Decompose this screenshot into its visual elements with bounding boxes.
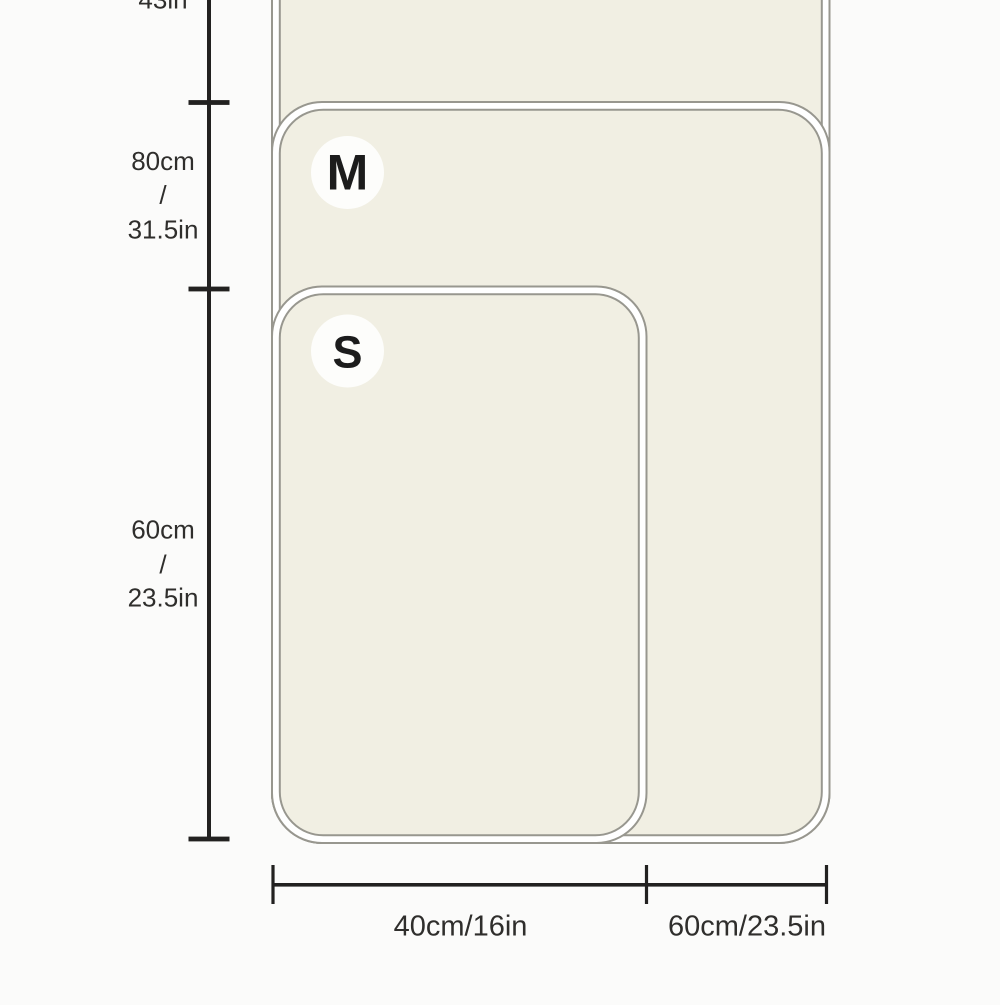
svg-text:40cm/16in: 40cm/16in (394, 911, 528, 943)
svg-text:/: / (159, 180, 167, 210)
svg-text:60cm: 60cm (131, 515, 195, 545)
svg-text:80cm: 80cm (131, 146, 195, 176)
svg-text:23.5in: 23.5in (128, 583, 199, 613)
svg-text:43in: 43in (138, 0, 187, 15)
svg-text:S: S (332, 327, 362, 378)
svg-text:60cm/23.5in: 60cm/23.5in (668, 911, 826, 943)
svg-text:/: / (159, 550, 167, 580)
svg-text:31.5in: 31.5in (128, 215, 199, 245)
svg-text:M: M (327, 145, 369, 201)
